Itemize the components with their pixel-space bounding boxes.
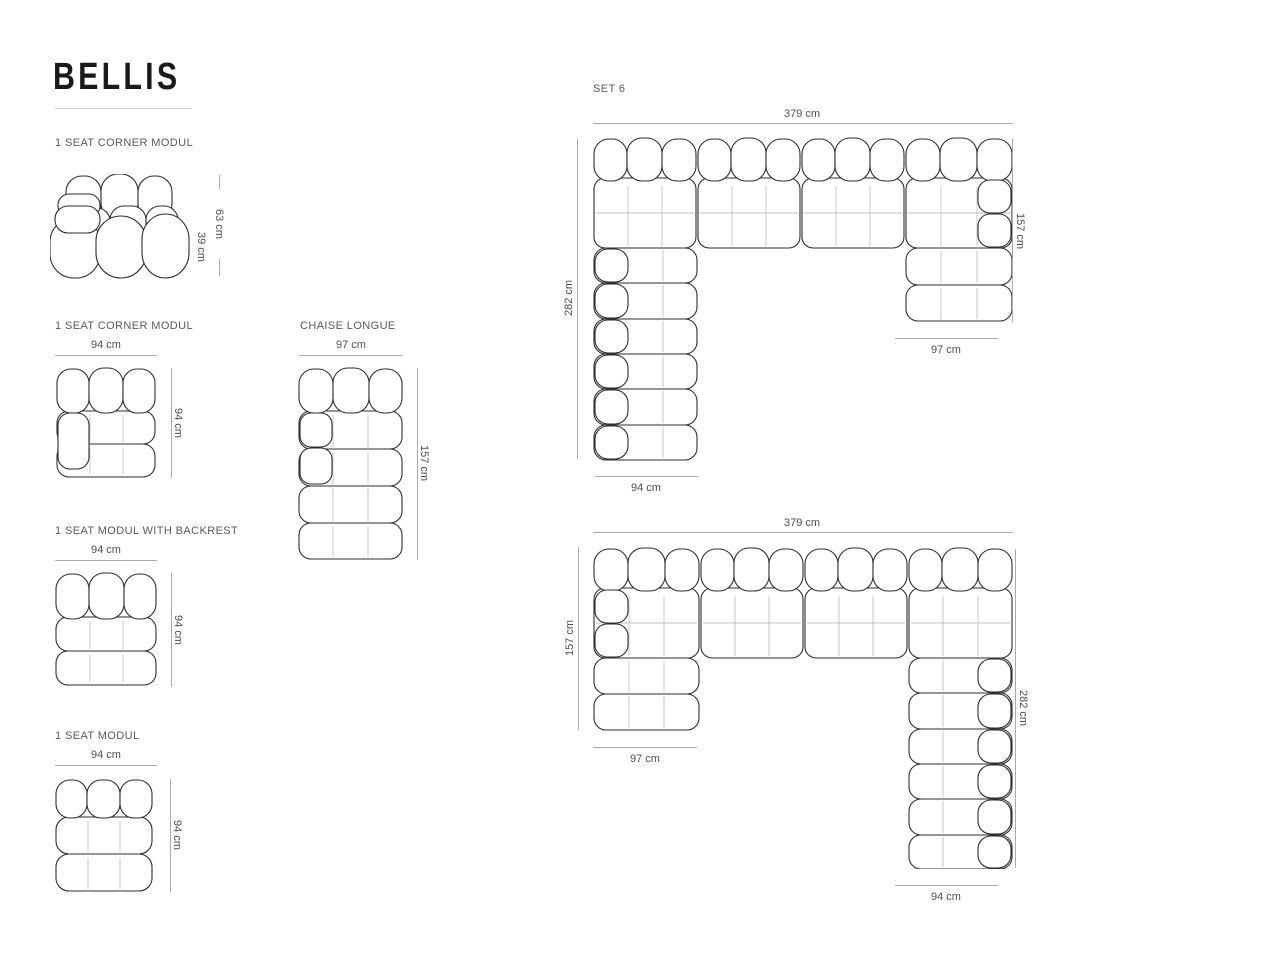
set2-seat-sections — [594, 588, 1012, 869]
brand-underline — [55, 108, 192, 109]
dim-label-corner-depth: 94 cm — [171, 388, 185, 458]
dim-label-set2-bottom-left: 97 cm — [610, 752, 680, 766]
dim-line-set2-left — [578, 547, 579, 730]
dim-label-set1-bottom-left: 94 cm — [611, 481, 681, 495]
backrest-module-drawing — [55, 572, 157, 686]
dim-line-chaise-width — [299, 355, 403, 356]
section-label-seat-module: 1 SEAT MODUL — [55, 730, 139, 742]
section-label-chaise: CHAISE LONGUE — [300, 320, 396, 332]
dim-label-set2-top: 379 cm — [767, 516, 837, 530]
side-armrest-pills — [55, 194, 100, 233]
dim-line-set1-top — [593, 123, 1013, 124]
dim-line-set1-bottom-right — [895, 338, 998, 339]
dim-line-corner-width — [55, 355, 157, 356]
dim-line-set2-bottom — [895, 885, 998, 886]
dim-label-set2-bottom: 94 cm — [911, 890, 981, 904]
set1-seat-sections — [594, 178, 1012, 460]
backrest-module-seat-bands — [56, 617, 156, 685]
seat-module-bands — [56, 817, 152, 891]
dim-label-seat-module-width: 94 cm — [71, 748, 141, 762]
dim-label-set1-top: 379 cm — [767, 107, 837, 121]
dim-label-set2-left: 157 cm — [563, 603, 577, 673]
dim-label-chaise-width: 97 cm — [316, 338, 386, 352]
dim-label-backrest-module-width: 94 cm — [71, 543, 141, 557]
dim-label-corner-width: 94 cm — [71, 338, 141, 352]
set1-drawing — [593, 137, 1013, 461]
dim-label-backrest-module-depth: 94 cm — [171, 595, 185, 665]
brand-title: BELLIS — [53, 56, 180, 99]
section-label-side-module: 1 SEAT CORNER MODUL — [55, 137, 193, 149]
dim-line-set1-bottom-left — [595, 476, 698, 477]
section-label-backrest-module: 1 SEAT MODUL WITH BACKREST — [55, 525, 238, 537]
dim-label-set1-left: 282 cm — [562, 263, 576, 333]
dim-label-set1-right: 157 cm — [1013, 196, 1027, 266]
dim-line-seat-module-width — [55, 765, 157, 766]
dim-line-backrest-module-width — [55, 560, 157, 561]
backrest-module-backrest-bubbles — [56, 573, 156, 619]
corner-backrest-bubbles — [57, 368, 155, 413]
seat-module-drawing — [55, 779, 153, 892]
seat-module-top-bubbles — [56, 780, 152, 818]
dim-label-side-total-height: 63 cm — [212, 189, 226, 259]
set2-backrest-bubbles — [594, 548, 1012, 591]
section-label-corner-module: 1 SEAT CORNER MODUL — [55, 320, 193, 332]
corner-armrest — [58, 413, 89, 469]
set2-drawing — [593, 547, 1013, 869]
set1-backrest-bubbles — [594, 138, 1012, 181]
chaise-backrest-bubbles — [299, 368, 402, 413]
dim-label-chaise-depth: 157 cm — [417, 428, 431, 498]
dim-label-seat-module-depth: 94 cm — [170, 800, 184, 870]
dim-line-set2-top — [593, 532, 1013, 533]
chaise-drawing — [298, 367, 403, 560]
dim-label-set1-bottom-right: 97 cm — [911, 343, 981, 357]
bellis-dimension-sheet: { "brand": {"title": "BELLIS"}, "section… — [0, 0, 1280, 960]
dim-line-set2-bottom-left — [593, 747, 697, 748]
dim-label-side-seat-height: 39 cm — [194, 212, 208, 282]
dim-label-set2-right: 282 cm — [1016, 673, 1030, 743]
corner-module-side-drawing — [50, 174, 190, 279]
corner-module-top-drawing — [56, 367, 156, 478]
dim-line-set1-left — [577, 139, 578, 459]
section-label-set6: SET 6 — [593, 83, 625, 95]
